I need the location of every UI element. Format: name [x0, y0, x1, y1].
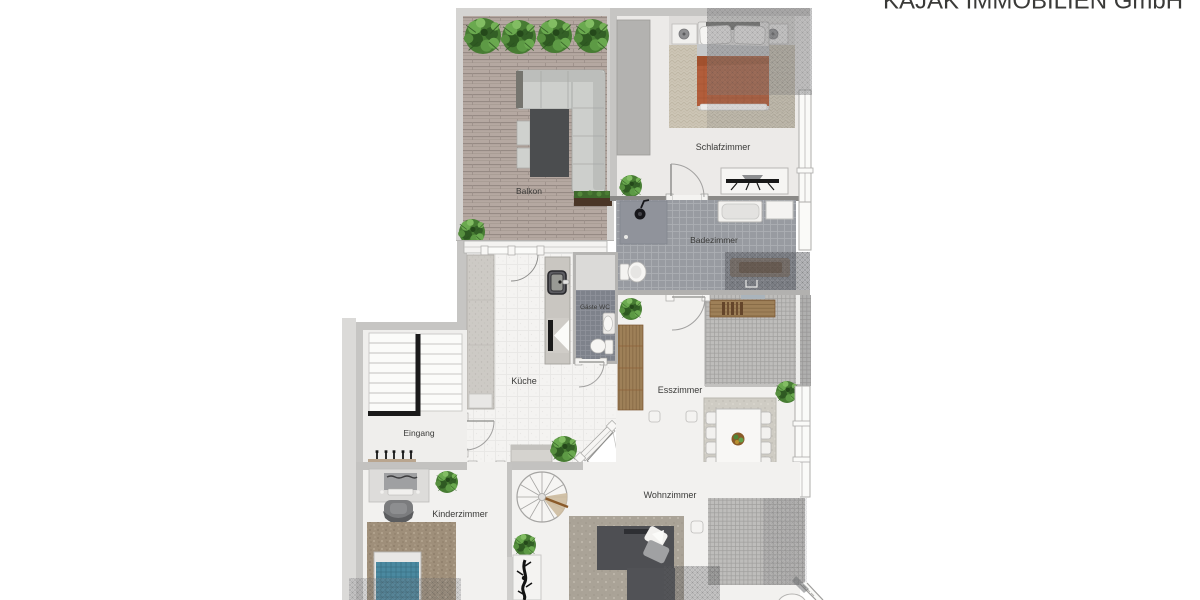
svg-text:Wohnzimmer: Wohnzimmer [644, 490, 697, 500]
svg-text:Schlafzimmer: Schlafzimmer [696, 142, 751, 152]
svg-text:Badezimmer: Badezimmer [690, 235, 738, 245]
svg-text:Küche: Küche [511, 376, 537, 386]
svg-text:Eingang: Eingang [403, 428, 434, 438]
svg-text:Esszimmer: Esszimmer [658, 385, 703, 395]
svg-text:Gäste WC: Gäste WC [580, 304, 610, 311]
svg-text:KAJAK IMMOBILIEN GmbH: KAJAK IMMOBILIEN GmbH [883, 0, 1183, 15]
svg-text:Balkon: Balkon [516, 186, 542, 196]
svg-text:Kinderzimmer: Kinderzimmer [432, 509, 488, 519]
